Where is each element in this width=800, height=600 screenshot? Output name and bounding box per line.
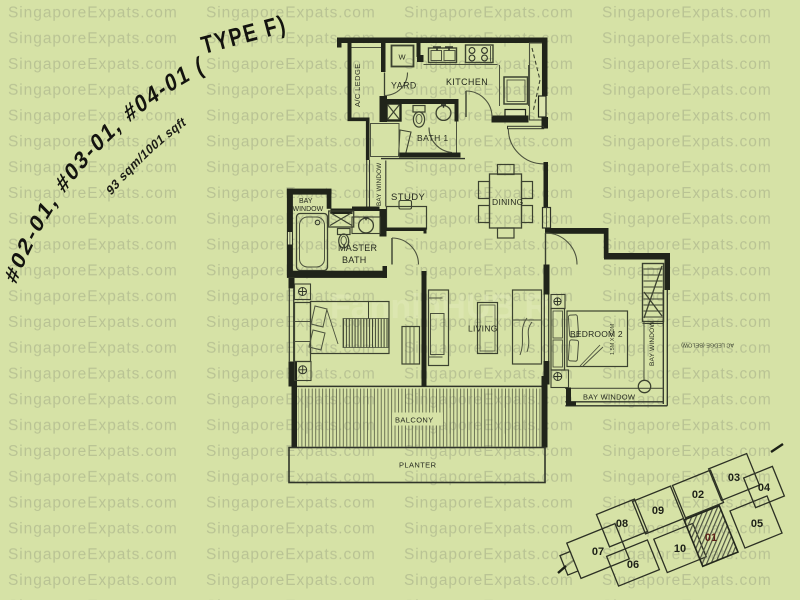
svg-text:AC LEDGE (BELOW): AC LEDGE (BELOW) bbox=[681, 342, 734, 348]
svg-text:01: 01 bbox=[705, 532, 717, 544]
svg-text:BAY WINDOW: BAY WINDOW bbox=[649, 321, 656, 366]
svg-text:03: 03 bbox=[728, 472, 740, 484]
svg-text:BATH: BATH bbox=[342, 255, 367, 265]
svg-text:A/C LEDGE: A/C LEDGE bbox=[353, 63, 362, 107]
svg-text:04: 04 bbox=[758, 482, 771, 494]
svg-text:KITCHEN: KITCHEN bbox=[446, 77, 488, 87]
svg-text:W: W bbox=[399, 53, 407, 62]
svg-text:BEDROOM 2: BEDROOM 2 bbox=[570, 329, 623, 339]
svg-text:YARD: YARD bbox=[391, 81, 417, 91]
svg-text:07: 07 bbox=[592, 546, 604, 558]
svg-text:PLANTER: PLANTER bbox=[399, 461, 437, 470]
svg-text:LIVING: LIVING bbox=[468, 324, 498, 334]
svg-text:BATH 1: BATH 1 bbox=[417, 133, 449, 143]
svg-text:STUDY: STUDY bbox=[391, 192, 425, 203]
svg-text:BALCONY: BALCONY bbox=[395, 416, 434, 425]
svg-text:02: 02 bbox=[692, 489, 704, 501]
svg-text:BAY WINDOW: BAY WINDOW bbox=[376, 163, 383, 206]
svg-text:MASTER: MASTER bbox=[338, 243, 378, 253]
svg-text:BAY WINDOW: BAY WINDOW bbox=[583, 393, 636, 402]
svg-text:06: 06 bbox=[627, 559, 639, 571]
svg-text:WINDOW: WINDOW bbox=[293, 206, 324, 213]
svg-text:10: 10 bbox=[674, 543, 686, 555]
svg-text:09: 09 bbox=[652, 505, 664, 517]
svg-text:08: 08 bbox=[616, 518, 628, 530]
svg-text:05: 05 bbox=[751, 518, 763, 530]
svg-text:DINING: DINING bbox=[492, 197, 524, 207]
svg-text:BAY: BAY bbox=[299, 198, 313, 205]
